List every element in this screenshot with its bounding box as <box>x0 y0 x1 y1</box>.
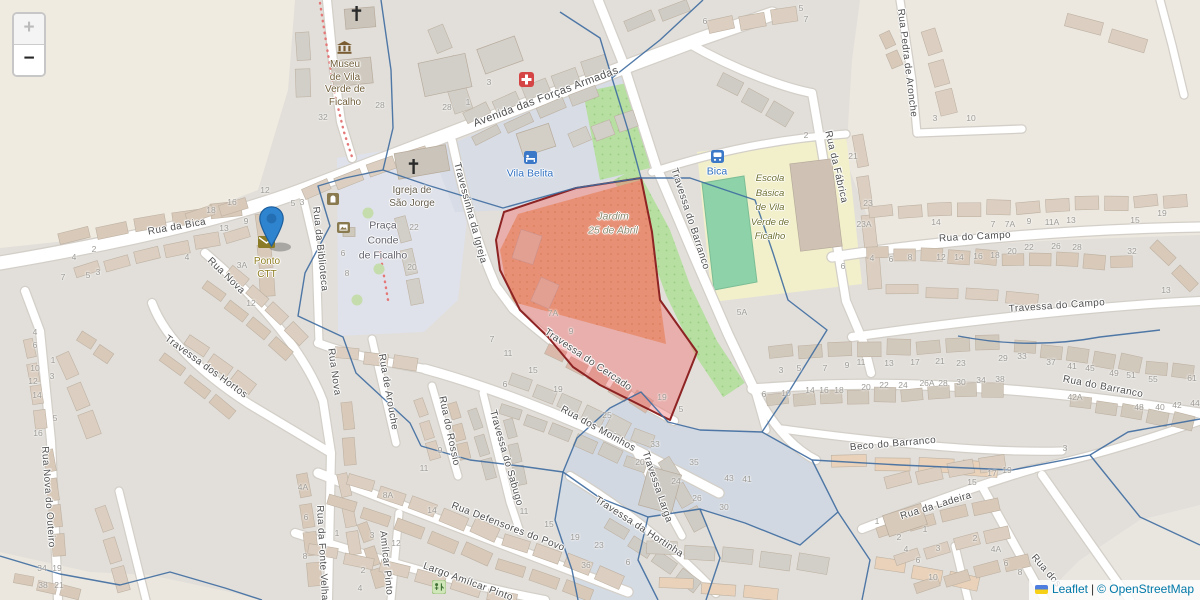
marker-pin-icon <box>259 206 284 247</box>
osm-link[interactable]: © OpenStreetMap <box>1097 582 1194 596</box>
map-canvas <box>0 0 1200 600</box>
attribution-bar: Leaflet|© OpenStreetMap <box>1029 580 1200 600</box>
zoom-out-button[interactable]: − <box>14 45 44 75</box>
zoom-control: + − <box>12 12 46 77</box>
ukraine-flag-icon <box>1035 585 1048 594</box>
map[interactable]: Avenida das Forças ArmadasRua da BicaRua… <box>0 0 1200 600</box>
attribution-separator: | <box>1091 582 1094 596</box>
zoom-in-button[interactable]: + <box>14 14 44 45</box>
leaflet-link[interactable]: Leaflet <box>1052 582 1088 596</box>
map-marker[interactable] <box>259 206 284 247</box>
